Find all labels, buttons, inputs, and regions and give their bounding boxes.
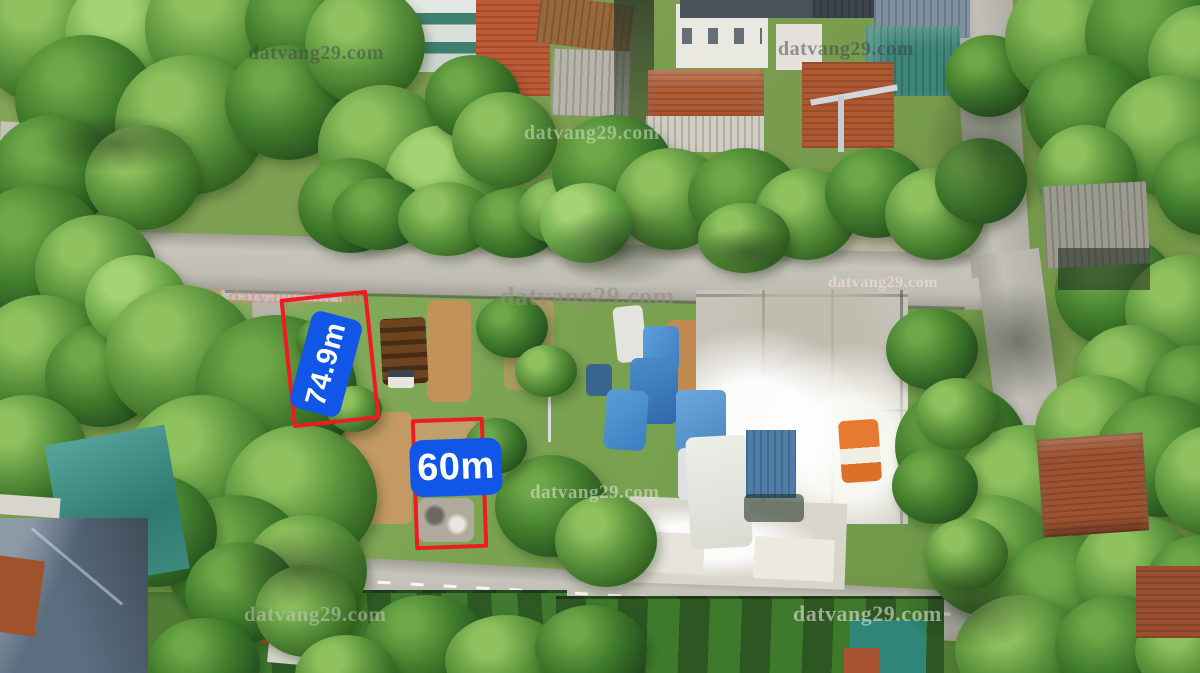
corner-terracotta-roof [1136,566,1200,638]
tree-shadow [222,528,374,610]
watermark: datvang29.com [828,274,938,292]
blue-tarp [603,389,649,452]
tree-shadow [925,72,1055,227]
aerial-photo-canvas: datvang29.com datvang29.com datvang29.co… [0,0,1200,673]
tree [892,448,978,524]
tree-shadow [545,208,690,286]
watermark: datvang29.com [244,602,386,627]
white-tarp-large [685,434,753,549]
tree-shadow [695,228,800,276]
tree [515,345,577,397]
watermark: datvang29.com [524,122,660,145]
white-railing [0,494,61,519]
concrete-pad [753,536,835,582]
orange-machine [838,419,882,484]
dark-roof [680,0,814,18]
watermark: datvang29.com [793,601,942,627]
blue-metal-panel [746,430,796,498]
dirt-patch [427,300,471,402]
steel-pipe [838,96,844,152]
terracotta-bit [844,648,880,673]
tree-shadow [962,282,1074,400]
building-windows [682,28,762,44]
watermark: datvang29.com [530,482,659,504]
tree-shadow [35,115,200,173]
tree [555,495,657,587]
panel-shadow [744,494,804,522]
watermark: datvang29.com [248,42,384,65]
terracotta-roof-2 [802,62,894,148]
shack-shadow-wall [1058,248,1150,290]
house-right-terracotta [1037,432,1150,537]
plot-length-label-small: 60m [409,437,503,497]
watermark: datvang29.com [778,38,914,61]
truck-cab [388,370,414,388]
watermark: datvang29.com [500,282,675,312]
